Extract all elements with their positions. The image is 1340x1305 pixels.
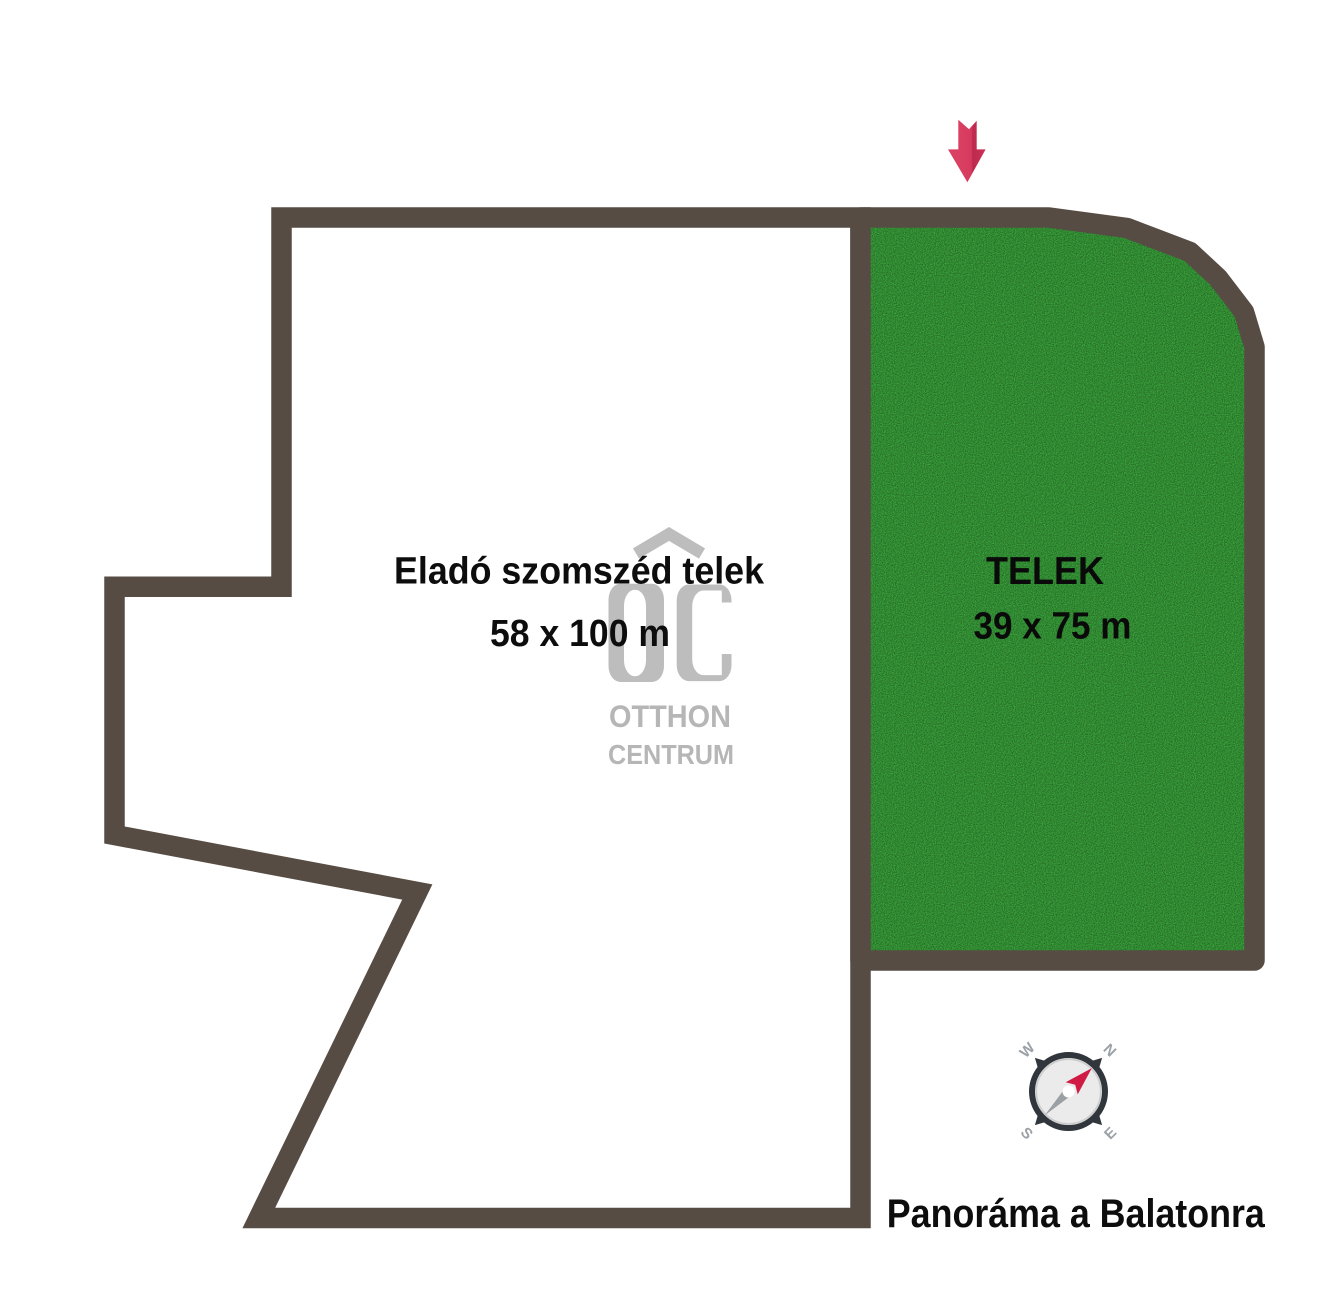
svg-text:Eladó szomszéd telek: Eladó szomszéd telek bbox=[394, 551, 765, 593]
svg-text:CENTRUM: CENTRUM bbox=[608, 739, 734, 770]
svg-text:39 x 75 m: 39 x 75 m bbox=[974, 606, 1132, 648]
svg-text:OTTHON: OTTHON bbox=[609, 698, 731, 734]
svg-text:TELEK: TELEK bbox=[986, 550, 1104, 593]
svg-text:Panoráma a Balatonra: Panoráma a Balatonra bbox=[887, 1192, 1266, 1236]
svg-text:58 x 100 m: 58 x 100 m bbox=[490, 613, 670, 655]
